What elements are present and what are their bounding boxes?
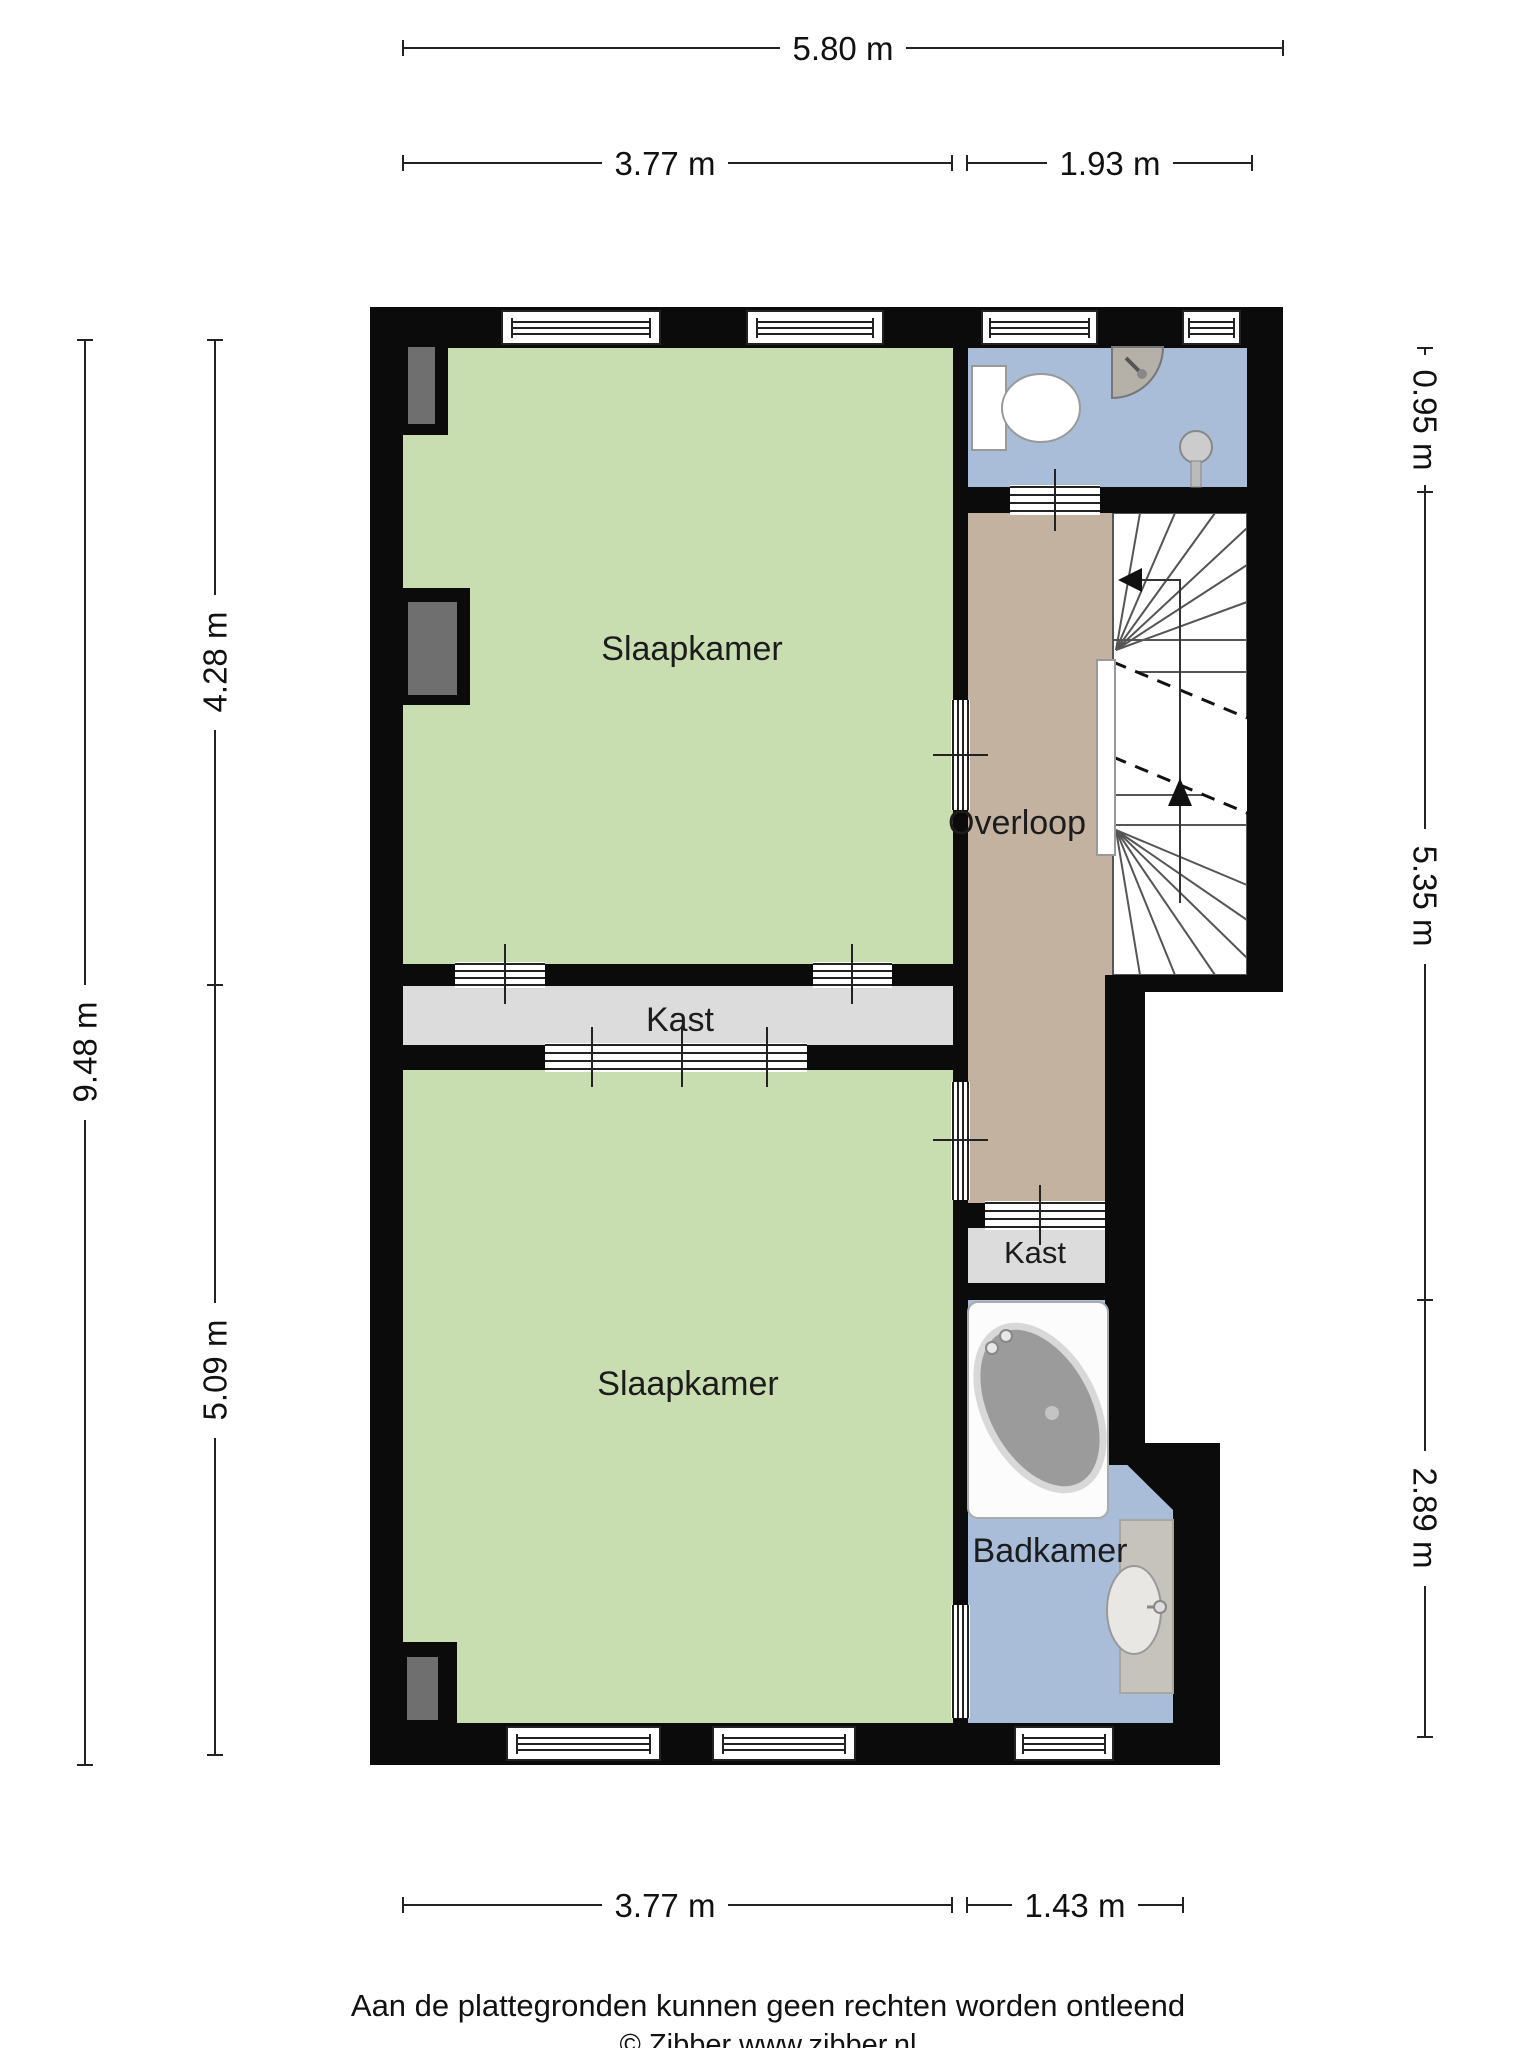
footer-copyright: © Zibber www.zibber.nl bbox=[620, 2029, 917, 2048]
corner-sink-drain-icon bbox=[1137, 369, 1147, 379]
closet-small-label: Kast bbox=[1004, 1235, 1066, 1270]
dim-bottom-right-label: 1.43 m bbox=[1025, 1887, 1126, 1924]
dim-right-top: 0.95 m bbox=[1403, 348, 1447, 492]
dim-left-lower: 5.09 m bbox=[193, 985, 237, 1755]
dim-left-upper-label: 4.28 m bbox=[197, 612, 234, 713]
basin-tap-icon bbox=[1154, 1601, 1166, 1613]
dim-right-bottom-label: 2.89 m bbox=[1407, 1468, 1444, 1569]
footer: Aan de plattegronden kunnen geen rechten… bbox=[351, 1988, 1185, 2048]
bedroom-bottom-label: Slaapkamer bbox=[597, 1365, 778, 1403]
dim-top-right: 1.93 m bbox=[967, 140, 1252, 185]
dim-right-middle-label: 5.35 m bbox=[1407, 846, 1444, 947]
chimney-mid-icon bbox=[408, 602, 457, 695]
dim-left-total: 9.48 m bbox=[63, 340, 107, 1765]
dim-right-middle: 5.35 m bbox=[1403, 492, 1447, 1300]
footer-disclaimer: Aan de plattegronden kunnen geen rechten… bbox=[351, 1988, 1185, 2023]
dim-top-left-label: 3.77 m bbox=[615, 145, 716, 182]
basin-icon bbox=[1107, 1566, 1161, 1654]
closet-middle-label: Kast bbox=[646, 1001, 715, 1039]
stair-handrail bbox=[1097, 660, 1115, 855]
floor-plan-page: Slaapkamer Slaapkamer Overloop Kast Kast… bbox=[0, 0, 1536, 2048]
dim-left-upper: 4.28 m bbox=[193, 340, 237, 985]
dim-top-right-label: 1.93 m bbox=[1060, 145, 1161, 182]
dim-left-total-label: 9.48 m bbox=[67, 1002, 104, 1103]
dim-top-total-label: 5.80 m bbox=[793, 30, 894, 67]
window-top-2 bbox=[747, 311, 883, 344]
door-bathroom bbox=[951, 1605, 970, 1718]
window-top-1 bbox=[502, 311, 660, 344]
window-bottom-3 bbox=[1015, 1727, 1113, 1760]
window-top-4 bbox=[1183, 311, 1240, 344]
landing-floor bbox=[968, 513, 1113, 1203]
bath-tap-icon bbox=[986, 1342, 998, 1354]
dim-bottom-left-label: 3.77 m bbox=[615, 1887, 716, 1924]
dim-left-lower-label: 5.09 m bbox=[197, 1320, 234, 1421]
bath-tap2-icon bbox=[1000, 1330, 1012, 1342]
dim-bottom-right: 1.43 m bbox=[967, 1882, 1183, 1927]
landing-label: Overloop bbox=[948, 804, 1086, 842]
bathtub-drain-icon bbox=[1045, 1406, 1059, 1420]
dim-right-top-label: 0.95 m bbox=[1407, 370, 1444, 471]
wash-fixture-icon bbox=[1180, 431, 1212, 463]
toilet-bowl-icon bbox=[1002, 374, 1080, 442]
wall-left bbox=[370, 307, 403, 1765]
bathroom-label: Badkamer bbox=[973, 1532, 1128, 1570]
window-bottom-1 bbox=[507, 1727, 660, 1760]
bedroom-top-label: Slaapkamer bbox=[601, 630, 782, 668]
dim-top-left: 3.77 m bbox=[403, 140, 952, 185]
dim-right-bottom: 2.89 m bbox=[1403, 1300, 1447, 1737]
dim-bottom-left: 3.77 m bbox=[403, 1882, 952, 1927]
wall-right-upper bbox=[1247, 307, 1283, 992]
wall-corridor bbox=[953, 348, 968, 1723]
window-top-3 bbox=[982, 311, 1097, 344]
toilet-tank-icon bbox=[972, 366, 1006, 450]
staircase bbox=[1097, 513, 1247, 975]
wash-fixture-stem-icon bbox=[1191, 461, 1201, 487]
chimney-top-icon bbox=[408, 347, 435, 424]
wall-closet-small-bottom bbox=[953, 1283, 1145, 1300]
dim-top-total: 5.80 m bbox=[403, 25, 1283, 70]
chimney-bottom-icon bbox=[407, 1657, 438, 1720]
window-bottom-2 bbox=[713, 1727, 855, 1760]
floor-plan-svg: Slaapkamer Slaapkamer Overloop Kast Kast… bbox=[0, 0, 1536, 2048]
